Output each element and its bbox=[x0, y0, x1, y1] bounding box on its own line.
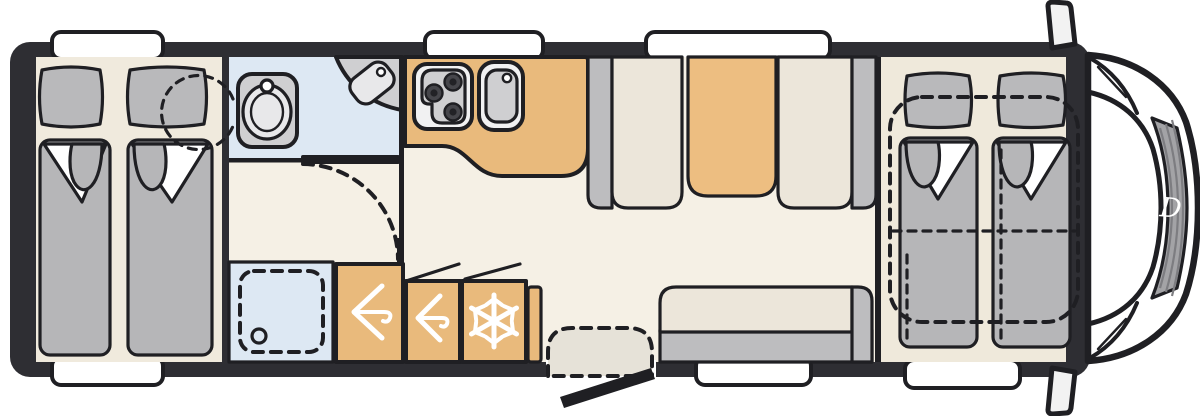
rear-bed-left-pillow bbox=[40, 67, 103, 127]
sink-tap bbox=[503, 74, 511, 82]
entry-door bbox=[546, 328, 656, 408]
window-dinette-top bbox=[646, 32, 830, 59]
washbasin-tap bbox=[377, 68, 385, 76]
shower-drain bbox=[252, 329, 266, 343]
bench-sofa bbox=[660, 287, 872, 362]
floorplan-canvas: D bbox=[0, 0, 1200, 416]
bathroom-wall-segment bbox=[229, 158, 304, 163]
front-bed-left-pillow bbox=[905, 73, 972, 128]
burner-1-core bbox=[430, 89, 437, 96]
burner-2-core bbox=[449, 78, 456, 85]
toilet-flush-button bbox=[261, 80, 273, 92]
bathroom-door-closed bbox=[301, 155, 400, 164]
bench-armrest bbox=[852, 287, 872, 362]
dinette-seat-right bbox=[778, 57, 852, 208]
cabinet-end-panel bbox=[528, 287, 541, 362]
dinette-armrest-right bbox=[852, 57, 876, 208]
mirror-top bbox=[1048, 2, 1075, 48]
dinette-armrest-left bbox=[588, 57, 612, 208]
partition-front bbox=[875, 57, 881, 362]
dinette-table bbox=[688, 57, 776, 196]
door-frame-post bbox=[397, 238, 403, 266]
entry-step bbox=[548, 328, 652, 376]
dinette bbox=[588, 57, 876, 208]
window-front-bottom bbox=[905, 360, 1020, 388]
bench-seat-front bbox=[660, 330, 872, 362]
floorplan-stage: D bbox=[0, 0, 1200, 416]
wardrobe-small bbox=[406, 281, 460, 362]
window-kitchen-top bbox=[425, 32, 543, 59]
shower bbox=[229, 262, 333, 362]
dinette-seat-left bbox=[612, 57, 682, 208]
bench-backrest bbox=[660, 287, 852, 332]
burner-3-core bbox=[449, 108, 456, 115]
brand-logo-letter: D bbox=[1157, 192, 1183, 225]
mirror-bottom bbox=[1048, 368, 1075, 414]
window-rear-top bbox=[52, 32, 163, 59]
